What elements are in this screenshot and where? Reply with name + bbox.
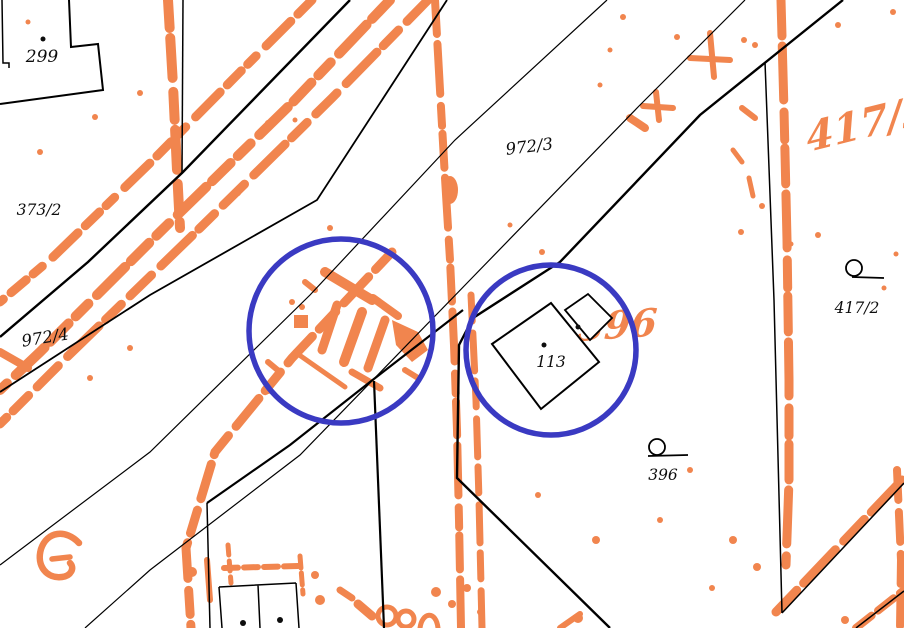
raster-road-band (0, 0, 312, 302)
raster-bottom-marks (187, 545, 583, 628)
raster-annotation-orange-417-2: 417/2 (804, 85, 904, 162)
building-dot (240, 620, 246, 626)
raster-specks (0, 20, 849, 625)
parcel-boundary (782, 483, 904, 613)
parcel-label-373-2: 373/2 (17, 201, 62, 219)
parcel-label-113: 113 (536, 353, 566, 371)
raster-blob (442, 176, 458, 204)
parcel-boundary (207, 310, 463, 503)
parcel-label-396: 396 (648, 466, 678, 484)
raster-g-mark (40, 534, 79, 577)
building-113 (492, 294, 612, 409)
parcel-label-972-4: 972/4 (20, 324, 70, 350)
building-dot (277, 617, 283, 623)
loop-landuse-symbol (846, 260, 884, 278)
orange-raster-layer: 417/2396 (0, 0, 904, 628)
cadastral-map-canvas[interactable]: 417/2396 (0, 0, 904, 628)
parcel-label-417-2: 417/2 (834, 299, 880, 317)
building-dot (542, 343, 547, 348)
parcel-label-299: 299 (25, 47, 59, 67)
parcel-boundary (182, 0, 183, 174)
raster-band (781, 0, 789, 565)
raster-road-band (0, 0, 428, 424)
raster-band (776, 480, 902, 612)
parcel-boundary (765, 62, 782, 613)
landuse-symbols (648, 260, 884, 456)
building-bottom (219, 583, 299, 628)
building-dot (576, 325, 581, 330)
loop-landuse-symbol (648, 439, 688, 456)
raster-old-building (264, 272, 428, 394)
building-dot (41, 37, 46, 42)
map-viewport: 417/2396 (0, 0, 904, 628)
raster-band (168, 0, 180, 228)
raster-band (471, 295, 482, 628)
parcel-label-972-3: 972/3 (505, 134, 555, 159)
raster-band (897, 470, 901, 628)
